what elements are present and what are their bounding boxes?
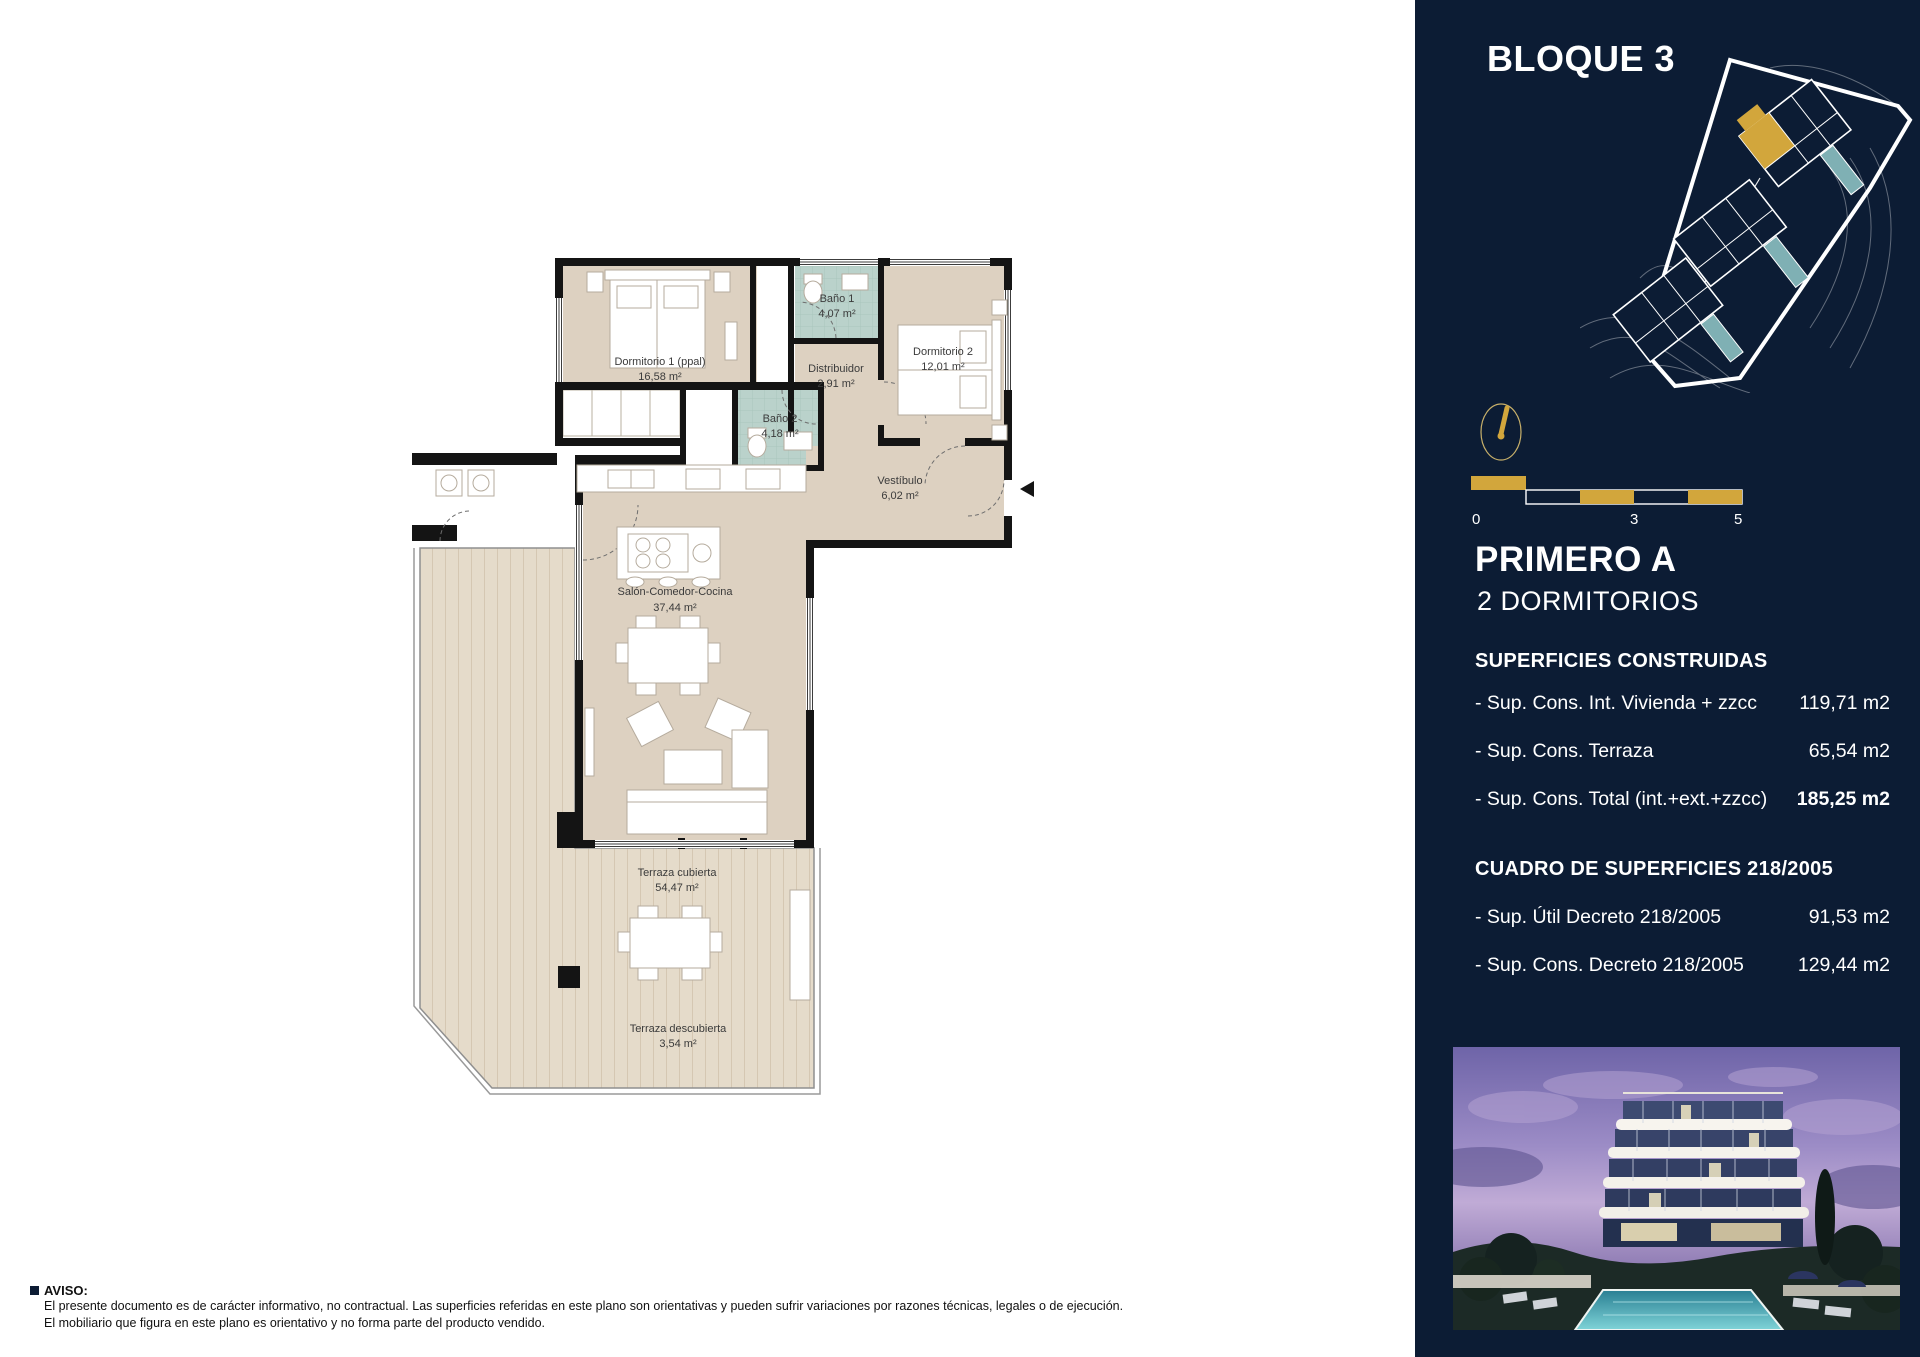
- building-render-photo: [1453, 1047, 1900, 1330]
- compass-icon: [1478, 400, 1524, 469]
- room-aseo: [680, 390, 738, 465]
- surface-row: - Sup. Útil Decreto 218/2005 91,53 m2: [1475, 906, 1890, 929]
- svg-text:16,58 m²: 16,58 m²: [638, 371, 682, 383]
- disclaimer-line: El mobiliario que figura en este plano e…: [44, 1315, 1123, 1332]
- info-sidebar: BLOQUE 3: [1415, 0, 1920, 1357]
- svg-text:37,44 m²: 37,44 m²: [653, 602, 697, 614]
- svg-text:4,18 m²: 4,18 m²: [761, 428, 799, 440]
- unit-title: PRIMERO A: [1475, 540, 1677, 580]
- surface-row: - Sup. Cons. Int. Vivienda + zzcc 119,71…: [1475, 692, 1890, 715]
- svg-text:12,01 m²: 12,01 m²: [921, 361, 965, 373]
- scale-label-0: 0: [1472, 511, 1480, 528]
- svg-text:4,07 m²: 4,07 m²: [818, 308, 856, 320]
- label-distribuidor: Distribuidor: [808, 363, 864, 375]
- pool: [1575, 1290, 1783, 1330]
- floor-plan: Dormitorio 1 (ppal) 16,58 m² Baño 1 4,07…: [380, 230, 1060, 1120]
- building-silhouette: [1599, 1093, 1809, 1247]
- scale-label-5: 5: [1734, 511, 1742, 528]
- disclaimer-line: El presente documento es de carácter inf…: [44, 1298, 1123, 1315]
- site-plan: [1580, 48, 1915, 398]
- label-salon: Salón-Comedor-Cocina: [618, 586, 734, 598]
- disclaimer: AVISO: El presente documento es de carác…: [30, 1283, 1123, 1332]
- label-terraza-descubierta: Terraza descubierta: [630, 1023, 727, 1035]
- svg-text:6,02 m²: 6,02 m²: [881, 490, 919, 502]
- label-bano2: Baño 2: [763, 413, 798, 425]
- disclaimer-title: AVISO:: [30, 1283, 1123, 1298]
- svg-text:54,47 m²: 54,47 m²: [655, 882, 699, 894]
- section-title-cuadro: CUADRO DE SUPERFICIES 218/2005: [1475, 858, 1833, 881]
- label-vestibulo: Vestíbulo: [877, 475, 922, 487]
- label-dormitorio1: Dormitorio 1 (ppal): [614, 356, 705, 368]
- scale-label-3: 3: [1630, 511, 1638, 528]
- scale-bar: 0 3 5: [1470, 476, 1744, 535]
- unit-subtitle: 2 DORMITORIOS: [1477, 586, 1699, 617]
- brochure-page: Dormitorio 1 (ppal) 16,58 m² Baño 1 4,07…: [0, 0, 1920, 1357]
- surface-row: - Sup. Cons. Decreto 218/2005 129,44 m2: [1475, 954, 1890, 977]
- surface-row: - Sup. Cons. Terraza 65,54 m2: [1475, 740, 1890, 763]
- label-dormitorio2: Dormitorio 2: [913, 346, 973, 358]
- svg-text:2,91 m²: 2,91 m²: [817, 378, 855, 390]
- label-bano1: Baño 1: [820, 293, 855, 305]
- label-terraza-cubierta: Terraza cubierta: [638, 867, 718, 879]
- bullet-square-icon: [30, 1286, 39, 1295]
- section-title-superficies: SUPERFICIES CONSTRUIDAS: [1475, 650, 1768, 673]
- surface-row: - Sup. Cons. Total (int.+ext.+zzcc) 185,…: [1475, 788, 1890, 811]
- svg-text:3,54 m²: 3,54 m²: [659, 1038, 697, 1050]
